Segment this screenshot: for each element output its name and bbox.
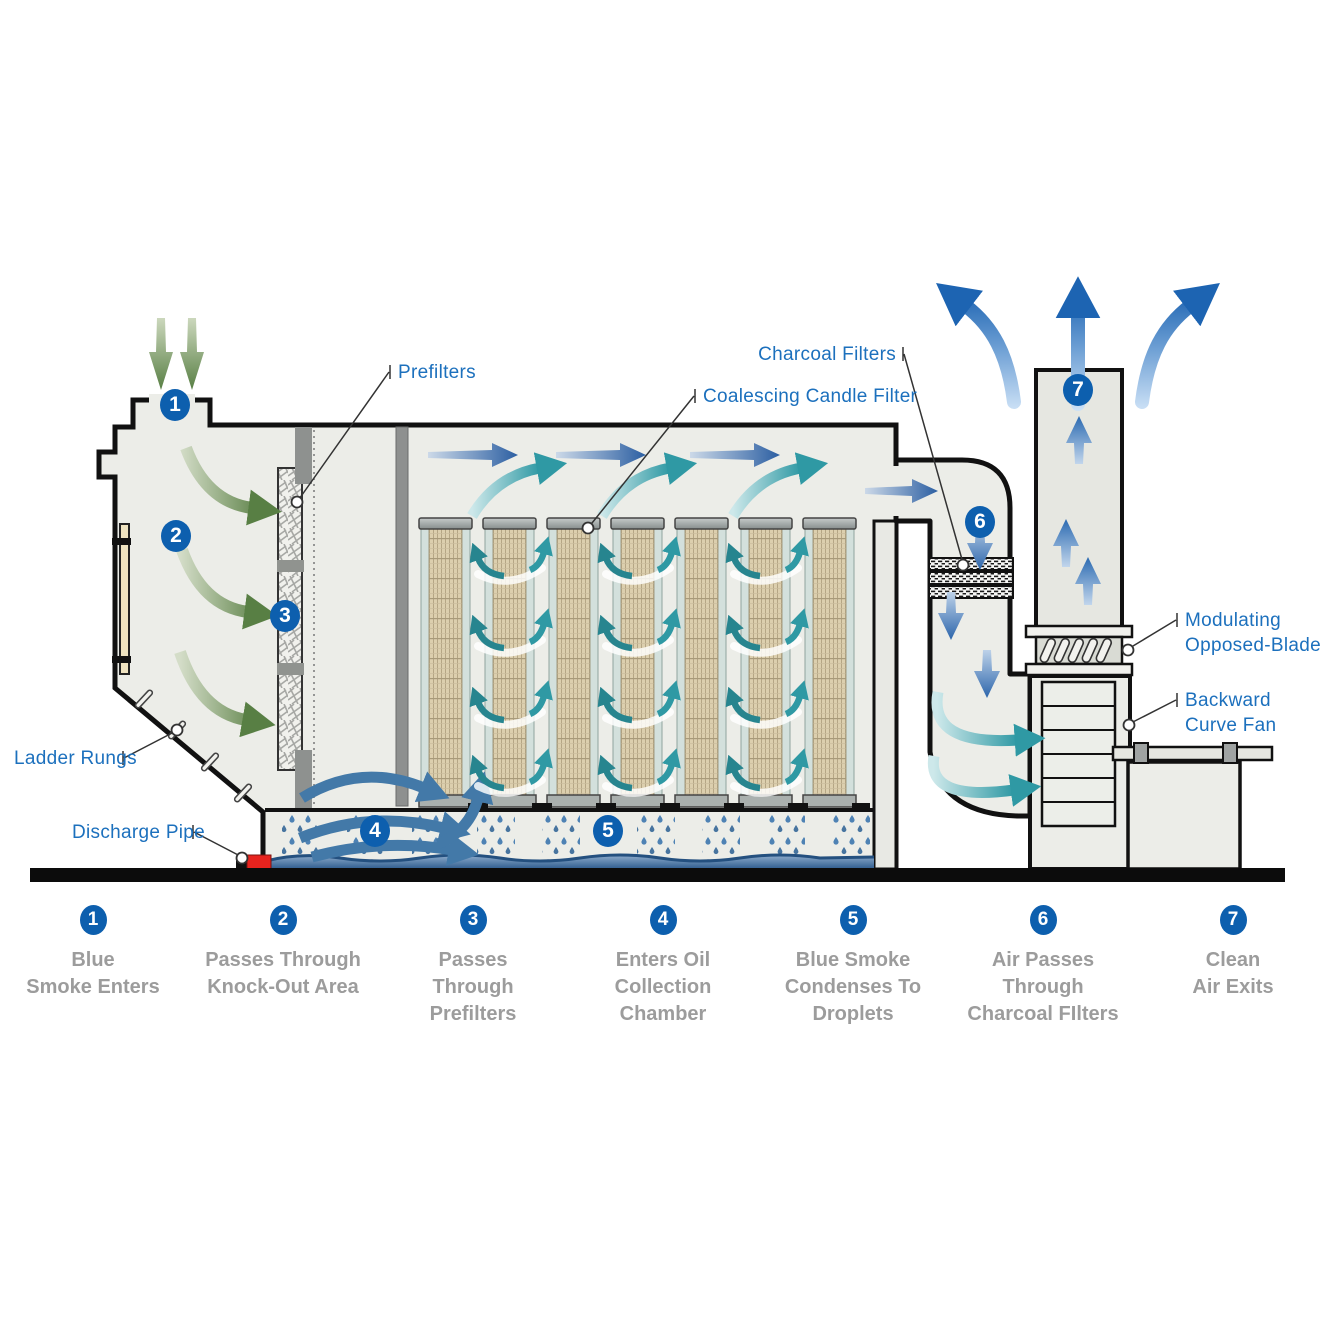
- chamber-right-wall: [874, 521, 896, 869]
- legend-line: Air Passes: [948, 947, 1138, 974]
- interior-wall: [396, 427, 408, 806]
- diagram-artwork: [0, 0, 1320, 1320]
- legend-number-7: 7: [1220, 905, 1247, 935]
- legend-text-2: Passes Through Knock-Out Area: [188, 947, 378, 1001]
- modulating-damper: [1026, 626, 1132, 675]
- legend-item-5: 5 Blue Smoke Condenses To Droplets: [758, 905, 948, 1028]
- legend-item-1: 1 Blue Smoke Enters: [0, 905, 188, 1001]
- label-ladder-rungs: Ladder Rungs: [14, 746, 137, 771]
- legend-number-6: 6: [1030, 905, 1057, 935]
- label-discharge-pipe: Discharge Pipe: [72, 820, 205, 845]
- legend-line: Chamber: [568, 1001, 758, 1028]
- label-modulating-opposed-blade: Modulating Opposed-Blade: [1185, 608, 1320, 658]
- charcoal-filter-bars: [929, 558, 1013, 598]
- legend-line: Through: [948, 974, 1138, 1001]
- legend-item-3: 3 Passes Through Prefilters: [378, 905, 568, 1028]
- legend-number-2: 2: [270, 905, 297, 935]
- legend-line: Condenses To: [758, 974, 948, 1001]
- label-backward-curve-fan: Backward Curve Fan: [1185, 688, 1276, 738]
- legend-text-3: Passes Through Prefilters: [378, 947, 568, 1028]
- legend-text-4: Enters Oil Collection Chamber: [568, 947, 758, 1028]
- step-marker-7: 7: [1063, 374, 1093, 406]
- label-modulating-line2: Opposed-Blade: [1185, 633, 1320, 658]
- legend-line: Passes: [378, 947, 568, 974]
- legend-line: Clean: [1138, 947, 1320, 974]
- step-marker-2: 2: [161, 520, 191, 552]
- step-marker-6: 6: [965, 506, 995, 538]
- legend-line: Passes Through: [188, 947, 378, 974]
- legend-text-1: Blue Smoke Enters: [0, 947, 188, 1001]
- legend-number-5: 5: [840, 905, 867, 935]
- legend-text-7: Clean Air Exits: [1138, 947, 1320, 1001]
- legend-line: Enters Oil: [568, 947, 758, 974]
- backward-curve-fan-box: [1042, 682, 1115, 826]
- legend-line: Through: [378, 974, 568, 1001]
- legend-number-4: 4: [650, 905, 677, 935]
- legend-number-1: 1: [80, 905, 107, 935]
- label-prefilters: Prefilters: [398, 360, 476, 385]
- legend-line: Prefilters: [378, 1001, 568, 1028]
- service-platform: [1113, 743, 1272, 869]
- label-charcoal-filters: Charcoal Filters: [738, 342, 896, 367]
- legend-number-3: 3: [460, 905, 487, 935]
- label-modulating-line1: Modulating: [1185, 608, 1320, 633]
- legend-text-6: Air Passes Through Charcoal FIlters: [948, 947, 1138, 1028]
- step-marker-3: 3: [270, 600, 300, 632]
- step-marker-5: 5: [593, 815, 623, 847]
- legend-line: Collection: [568, 974, 758, 1001]
- legend: 1 Blue Smoke Enters 2 Passes Through Kno…: [0, 905, 1320, 1065]
- legend-item-7: 7 Clean Air Exits: [1138, 905, 1320, 1001]
- legend-line: Air Exits: [1138, 974, 1320, 1001]
- legend-line: Knock-Out Area: [188, 974, 378, 1001]
- legend-line: Blue Smoke: [758, 947, 948, 974]
- legend-line: Droplets: [758, 1001, 948, 1028]
- legend-line: Smoke Enters: [0, 974, 188, 1001]
- label-fan-line2: Curve Fan: [1185, 713, 1276, 738]
- step-marker-1: 1: [160, 389, 190, 421]
- legend-item-2: 2 Passes Through Knock-Out Area: [188, 905, 378, 1001]
- label-coalescing-candle-filter: Coalescing Candle Filter: [703, 384, 917, 409]
- transfer-duct-elbow: [888, 460, 1030, 816]
- legend-item-4: 4 Enters Oil Collection Chamber: [568, 905, 758, 1028]
- legend-text-5: Blue Smoke Condenses To Droplets: [758, 947, 948, 1028]
- coalescing-candle-filters: [419, 518, 856, 807]
- legend-line: Charcoal FIlters: [948, 1001, 1138, 1028]
- legend-line: Blue: [0, 947, 188, 974]
- step-marker-4: 4: [360, 815, 390, 847]
- ground-line: [30, 868, 1285, 882]
- legend-item-6: 6 Air Passes Through Charcoal FIlters: [948, 905, 1138, 1028]
- blue-smoke-filtration-diagram: Prefilters Coalescing Candle Filter Char…: [0, 0, 1320, 1320]
- label-fan-line1: Backward: [1185, 688, 1276, 713]
